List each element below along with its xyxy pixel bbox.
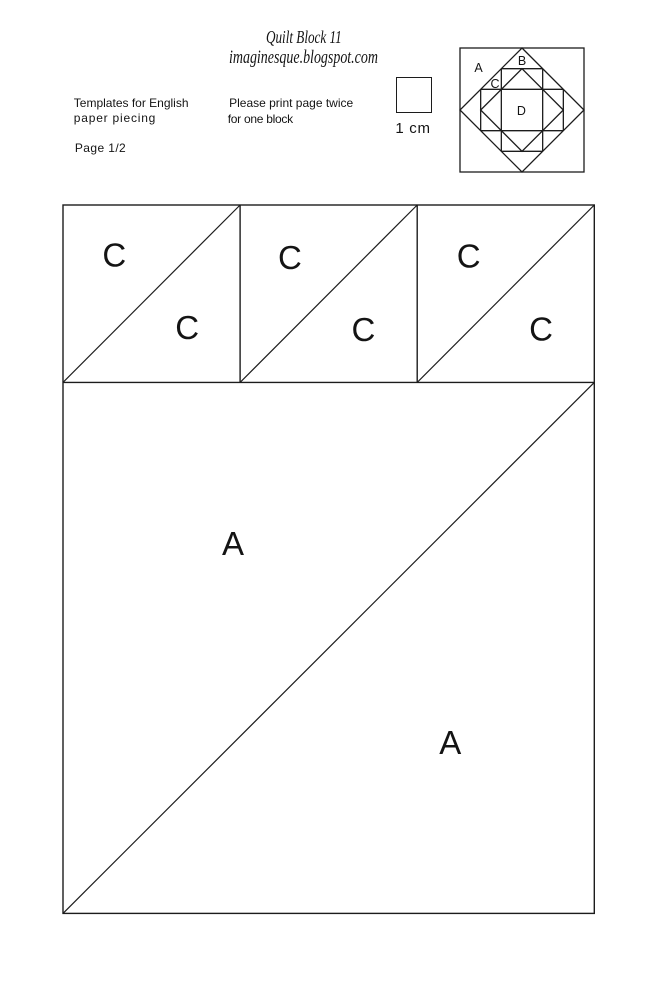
svg-text:A: A [222, 525, 244, 562]
svg-text:B: B [517, 54, 525, 68]
svg-text:A: A [439, 724, 461, 761]
svg-text:D: D [516, 104, 525, 118]
svg-text:C: C [278, 239, 302, 276]
svg-text:A: A [474, 61, 483, 75]
svg-text:C: C [175, 309, 199, 346]
svg-text:C: C [351, 311, 375, 348]
svg-text:C: C [490, 77, 499, 91]
svg-text:C: C [457, 237, 481, 274]
svg-text:C: C [529, 310, 553, 347]
svg-text:C: C [102, 236, 126, 273]
